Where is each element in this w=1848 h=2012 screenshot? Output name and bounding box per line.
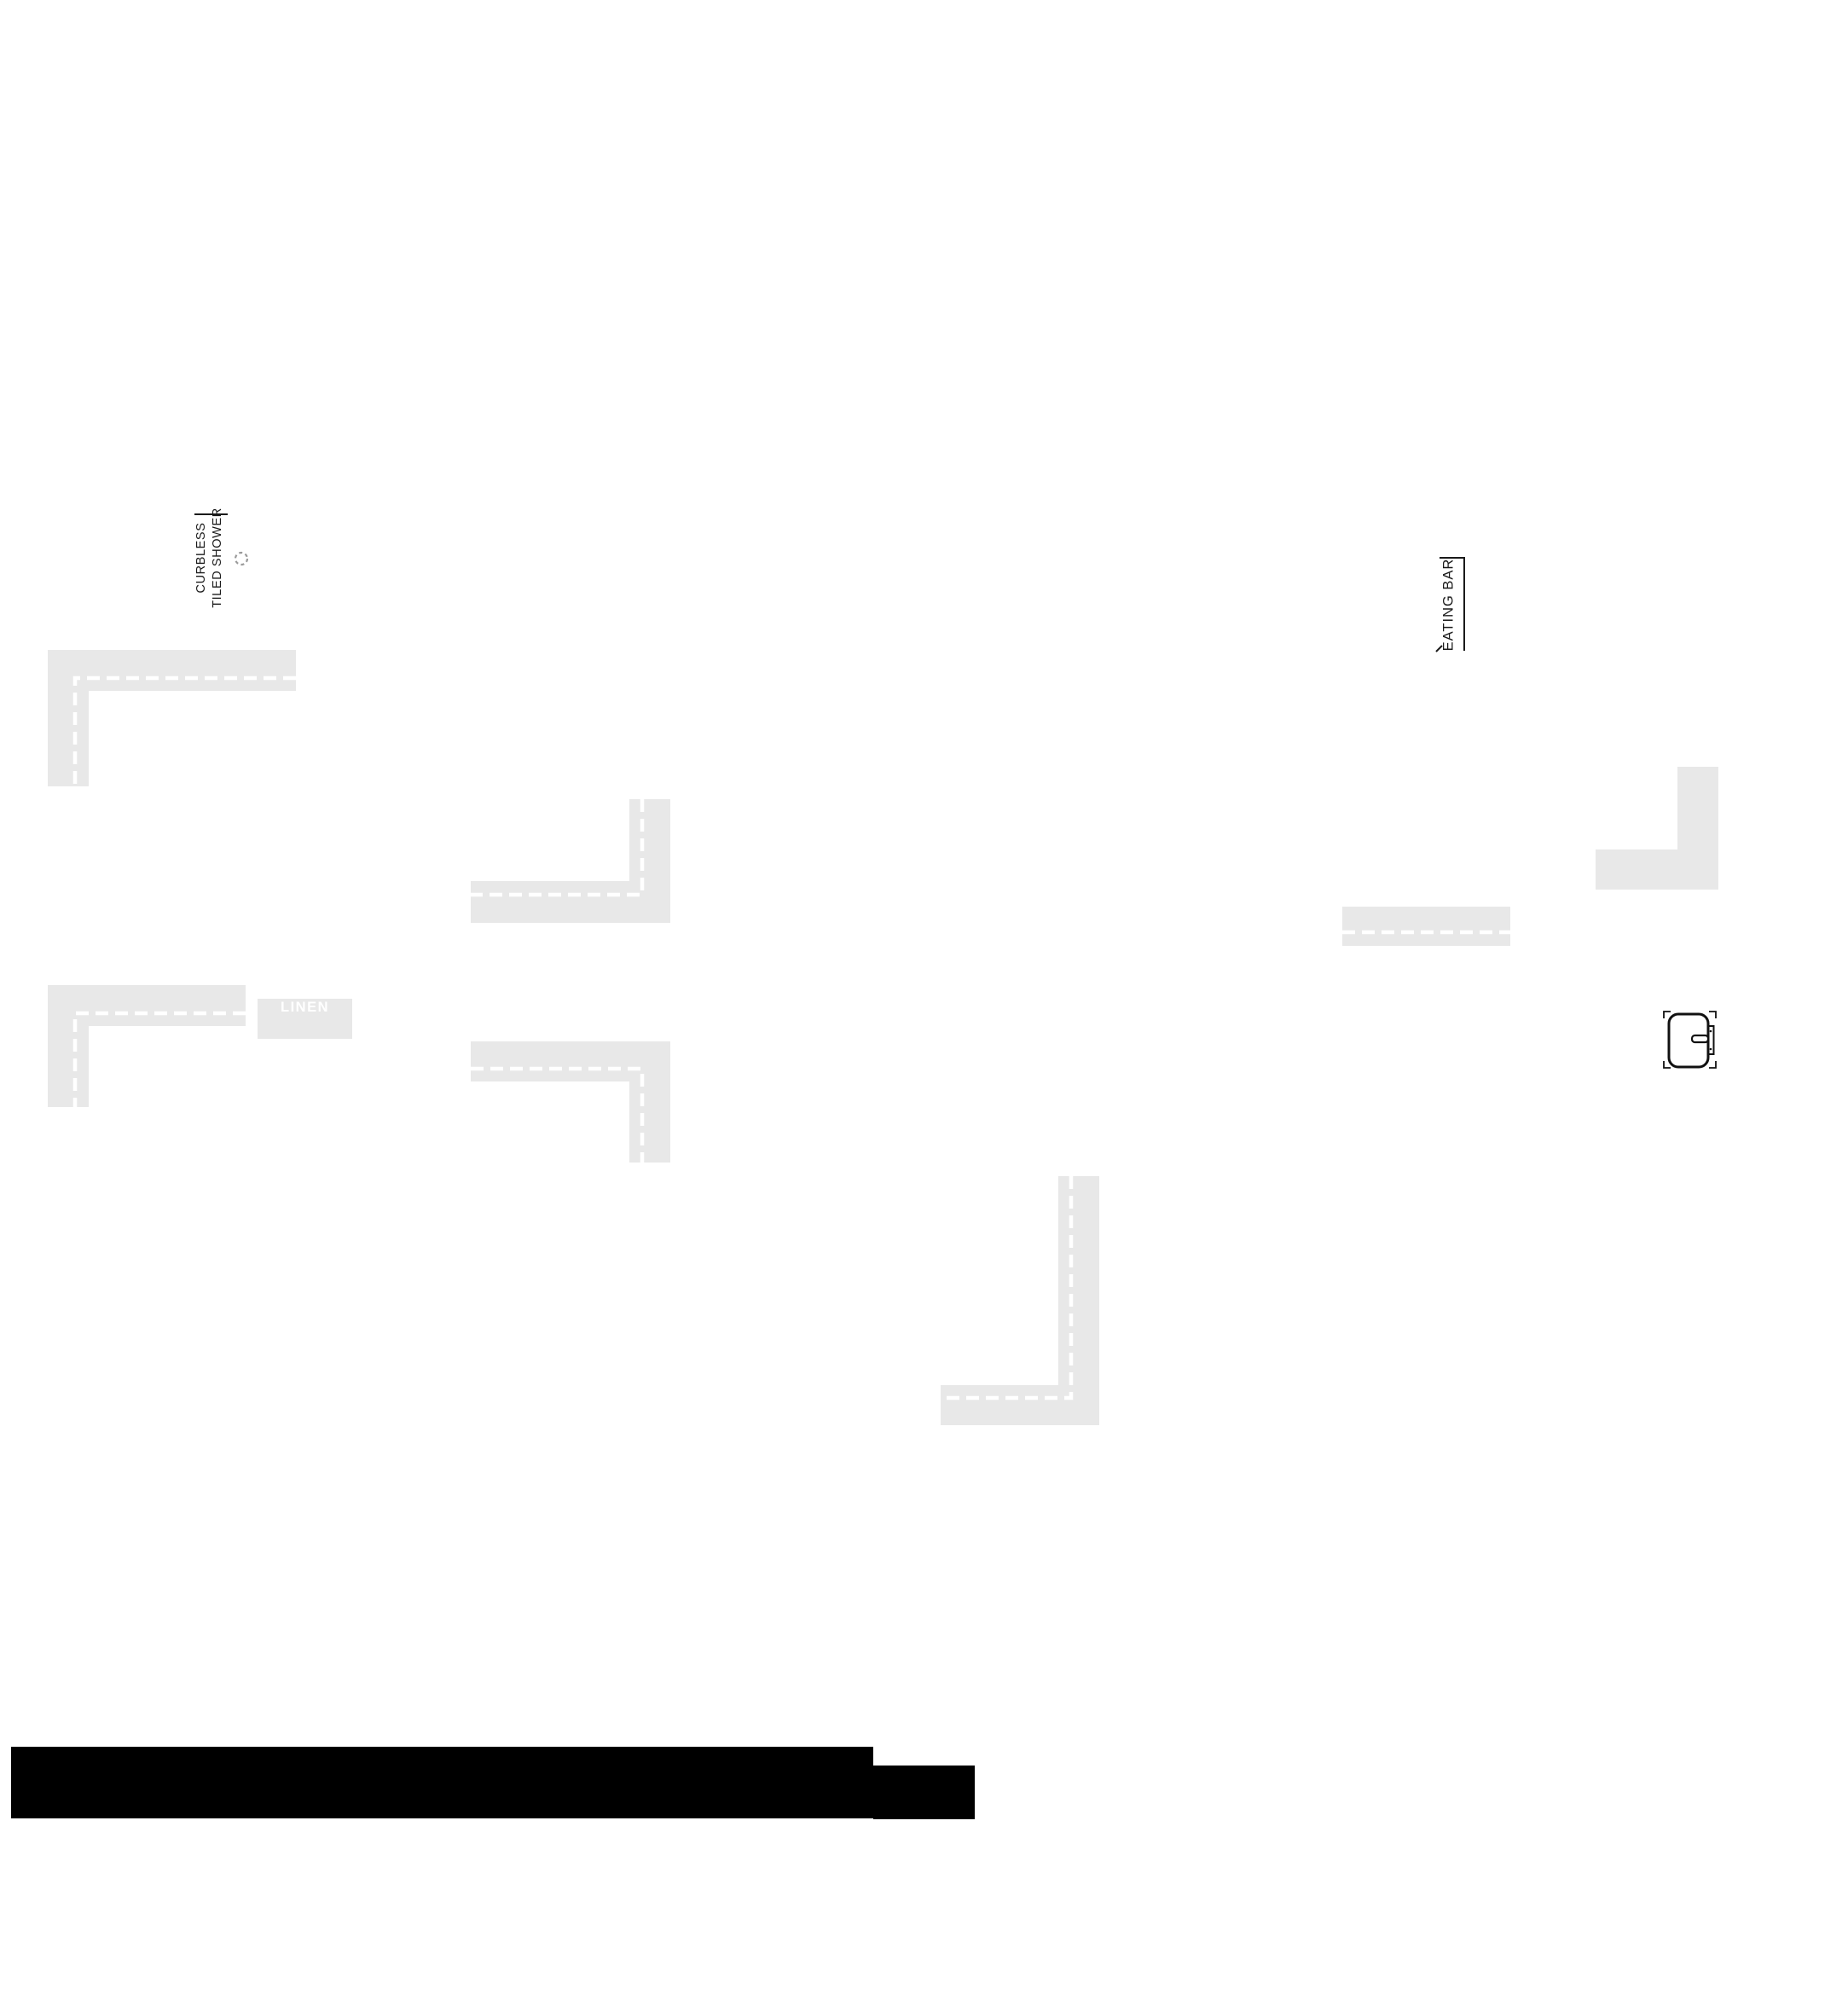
door-corner-tick-bottom-right xyxy=(1709,1061,1716,1068)
wall-segment-top-left xyxy=(48,650,296,786)
black-mass-bar-right xyxy=(873,1766,975,1819)
curbless-shower-label-line2: TILED SHOWER xyxy=(211,507,224,608)
door-latch-screw-top xyxy=(1710,1030,1712,1033)
curbless-shower-label-line1: CURBLESS xyxy=(194,523,208,594)
door-handle xyxy=(1692,1035,1708,1042)
door-icon xyxy=(1664,1012,1716,1068)
black-mass-bar-left xyxy=(11,1747,873,1818)
door-latch-screw-bottom xyxy=(1710,1048,1712,1051)
door-corner-tick-top-right xyxy=(1709,1012,1716,1018)
wall-centerline-dash-center-lower xyxy=(471,1069,642,1163)
wall-segment-mid-left xyxy=(48,985,246,1107)
shower-drain-icon xyxy=(235,553,247,565)
eating-bar-label: EATING BAR xyxy=(1441,559,1457,652)
wall-centerline-dash-center-upper xyxy=(471,799,642,895)
linen-label: LINEN xyxy=(258,999,352,1016)
wall-segment-center-low xyxy=(941,1176,1099,1425)
wall-segment-right xyxy=(1596,767,1718,890)
wall-centerline-dash-mid-left xyxy=(75,1013,246,1107)
floor-plan-canvas: CURBLESS TILED SHOWER EATING BAR LINEN xyxy=(0,0,1848,2012)
curbless-shower-label: CURBLESS TILED SHOWER xyxy=(194,507,226,608)
wall-centerline-dash-center-low xyxy=(941,1176,1071,1398)
wall-centerline-dash-top-left xyxy=(75,678,296,786)
wall-segment-right-bar xyxy=(1342,907,1510,946)
